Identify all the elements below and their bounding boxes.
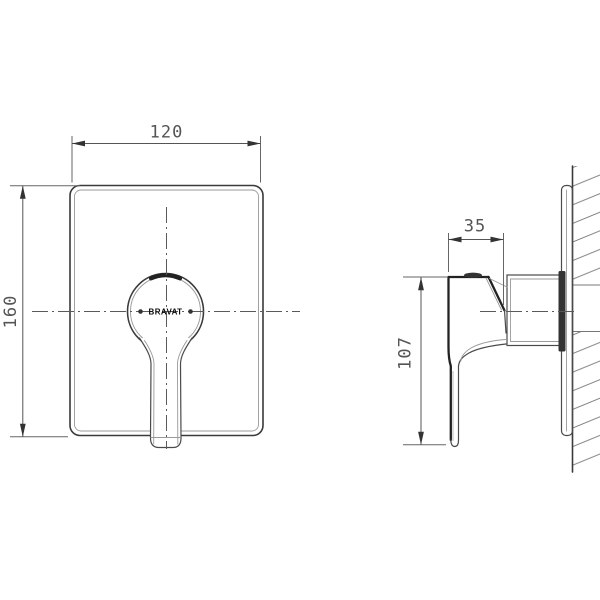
drawing-svg: BRAVAT 120 160 <box>0 0 600 600</box>
hub-dot-left <box>138 309 143 314</box>
front-view: BRAVAT 120 160 <box>1 123 300 450</box>
technical-drawing-page: BRAVAT 120 160 <box>0 0 600 600</box>
dim-handle-depth-label: 35 <box>464 217 486 237</box>
handle-lever-side <box>449 273 508 447</box>
dim-handle-height: 107 <box>396 277 448 445</box>
hub-dot-right <box>188 309 193 314</box>
dim-front-width-label: 120 <box>150 123 184 143</box>
wall-hatching <box>573 166 600 472</box>
dim-front-width: 120 <box>72 123 261 183</box>
dim-front-height-label: 160 <box>1 295 21 329</box>
brand-logo-text: BRAVAT <box>149 308 183 317</box>
handle-cap-side <box>464 273 482 278</box>
dim-handle-height-label: 107 <box>396 336 416 370</box>
handle-cap-edge <box>151 275 180 278</box>
side-view: 35 107 <box>396 166 600 472</box>
